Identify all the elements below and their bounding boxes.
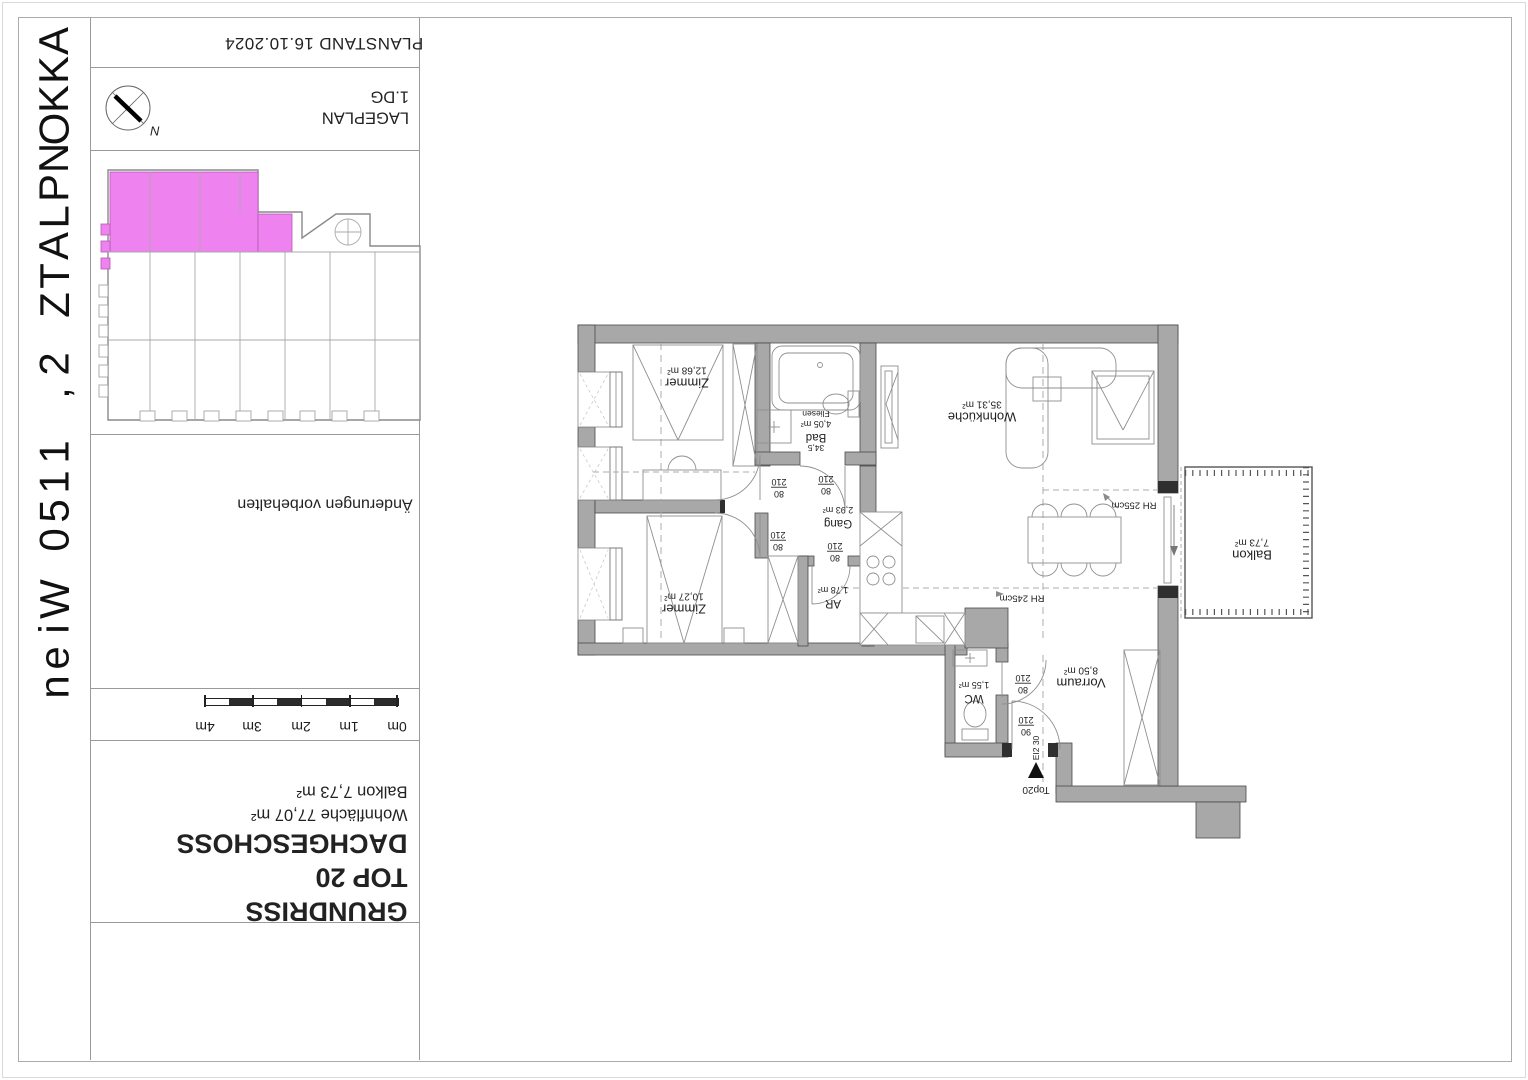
planstand-label: PLANSTAND 16.10.2024 — [225, 33, 424, 53]
lageplan-floor: 1.DG — [299, 86, 409, 107]
scale-label-4m: 4m — [195, 719, 214, 735]
titleblock-grundriss: GRUNDRISS — [165, 894, 408, 928]
titleblock-text: GRUNDRISS TOP 20 DACHGESCHOSS Wohnfläche… — [165, 780, 408, 929]
wardrobe-vorraum — [1124, 650, 1160, 785]
wardrobe-zimmer2 — [768, 556, 798, 643]
compass-north-label: N — [150, 123, 159, 138]
balcony-door-panel — [1164, 497, 1171, 583]
siteplan — [99, 170, 420, 421]
north-compass-icon — [106, 86, 150, 130]
lageplan-title: LAGEPLAN — [299, 107, 409, 128]
titleblock-balkon: Balkon 7,73 m² — [165, 780, 408, 801]
entry-fire-rating: EI2 30 — [1031, 736, 1041, 761]
room-label-wc: WC 1,55 m² — [959, 680, 990, 704]
entrance-top20-label: Top20 — [1022, 783, 1049, 795]
room-label-balkon: Balkon 7,73 m² — [1232, 535, 1272, 562]
rh255-arrow-icon — [1103, 493, 1110, 501]
window-3 — [578, 548, 622, 620]
toilet-wc — [962, 701, 988, 740]
room-label-zimmer2: Zimmer 10,27 m² — [662, 589, 706, 616]
titleblock-wohnflaeche: Wohnfläche 77,07 m² — [165, 803, 408, 824]
furniture — [623, 344, 1160, 785]
rh-arrows — [996, 493, 1118, 597]
scale-label-1m: 1m — [339, 719, 358, 735]
window-units — [578, 372, 622, 620]
door-arc-zimmer1 — [715, 455, 760, 500]
lageplan-label: LAGEPLAN 1.DG — [299, 86, 409, 127]
scale-bar: 4m 3m 2m 1m 0m — [204, 695, 398, 735]
titleblock-top: TOP 20 — [165, 860, 408, 894]
window-1 — [578, 372, 622, 427]
sofa — [1006, 348, 1116, 468]
coffee-table — [1033, 377, 1061, 401]
room-label-vorraum: Vorraum 8,50 m² — [1056, 663, 1105, 690]
door-dim-bad: 80 210 — [818, 472, 834, 496]
tv-unit — [881, 366, 898, 448]
scale-label-2m: 2m — [291, 719, 310, 735]
scale-label-0m: 0m — [387, 719, 406, 735]
door-dim-zimmer2: 80 210 — [770, 528, 786, 552]
room-label-zimmer1: Zimmer 12,68 m² — [665, 363, 709, 390]
dining-set — [1028, 504, 1121, 576]
room-label-gang: Gang 2,93 m² — [823, 505, 854, 529]
disclaimer-label: Änderungen vorbehalten — [237, 494, 412, 513]
rh245-label: RH 245cm — [1000, 592, 1045, 603]
room-label-wohnkueche: Wohnküche 35,31 m² — [948, 397, 1016, 424]
wardrobe-zimmer1 — [733, 344, 757, 466]
door-dim-ar: 80 210 — [827, 539, 843, 563]
window-2 — [578, 447, 622, 500]
lounge-chair — [1092, 371, 1154, 444]
kitchen-counter — [860, 512, 965, 645]
rh255-label: RH 255cm — [1112, 499, 1157, 510]
plan-sheet: AKKONPLATZ 2, 1150 Wien — [0, 0, 1528, 1080]
bed-zimmer2 — [623, 516, 744, 643]
bathtub — [772, 346, 860, 410]
desk-zimmer1 — [643, 456, 721, 500]
titleblock-geschoss: DACHGESCHOSS — [165, 826, 408, 860]
door-dim-entry: 90 210 — [1018, 713, 1034, 737]
door-dim-zimmer1: 80 210 — [771, 475, 787, 499]
door-dim-wc: 80 210 — [1015, 671, 1031, 695]
room-label-bad: 34,5 Bad 4,05 m² Fliesen — [801, 409, 832, 453]
entrance-marker-icon — [1028, 762, 1044, 778]
floorplan-walls — [578, 325, 1246, 838]
scale-label-3m: 3m — [242, 719, 261, 735]
room-label-ar: AR 1,78 m² — [818, 585, 849, 609]
bed-zimmer1 — [633, 345, 723, 440]
